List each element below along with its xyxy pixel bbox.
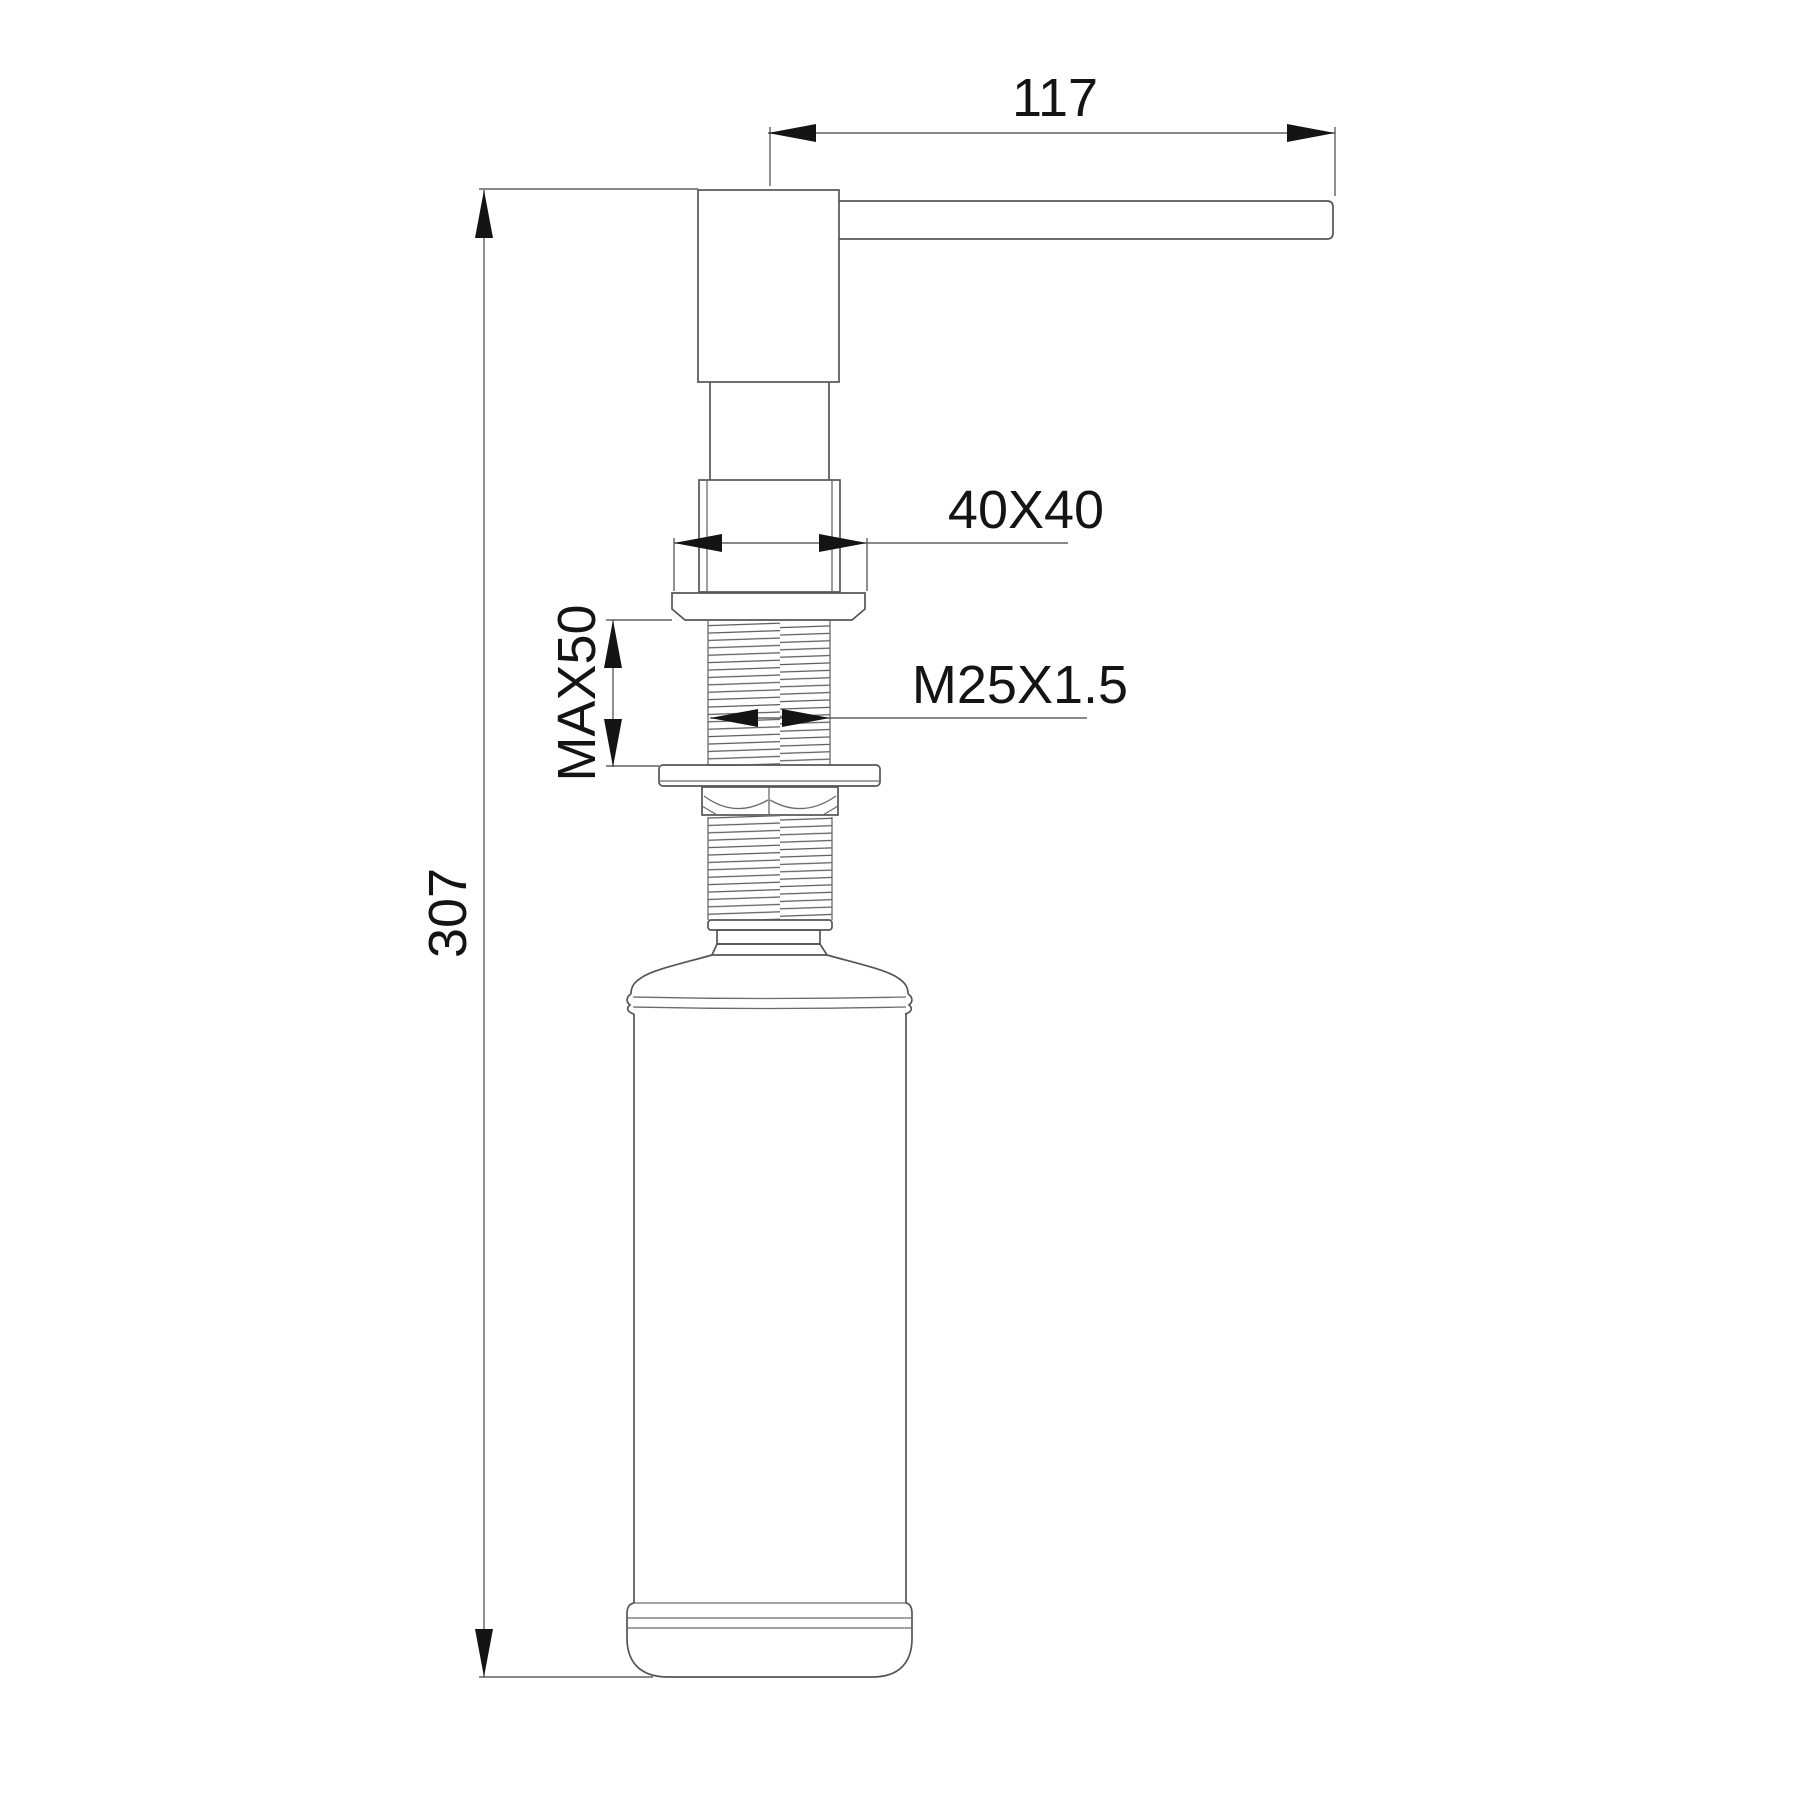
arrowhead-down-icon [475, 1629, 493, 1677]
bottle-base-cap [627, 1603, 912, 1677]
dim-label-spout-reach: 117 [1012, 68, 1098, 128]
upper-thread-section [708, 620, 830, 766]
dim-overall-height: 307 [418, 189, 698, 1677]
dim-spout-reach: 117 [768, 68, 1335, 196]
drawing-page: 117 40X40 MAX50 M25X1.5 [0, 0, 1800, 1800]
spout-tube [839, 201, 1333, 239]
bottle-body [634, 1014, 906, 1603]
technical-drawing-canvas: 117 40X40 MAX50 M25X1.5 [0, 0, 1800, 1800]
bottle-shoulder [631, 955, 908, 994]
arrowhead-up-icon [475, 190, 493, 238]
bottle-collar [708, 920, 832, 955]
dim-label-flange-size: 40X40 [948, 480, 1104, 540]
dim-flange-size: 40X40 [674, 480, 1104, 591]
arrowhead-right-icon [1287, 124, 1335, 142]
neck-tube [710, 382, 829, 480]
mounting-flange [672, 593, 865, 620]
washer [659, 765, 880, 786]
arrowhead-right-icon [819, 534, 867, 552]
arrowhead-left-icon [674, 534, 722, 552]
lower-thread-section [708, 816, 832, 920]
dim-label-thread-spec: M25X1.5 [912, 655, 1128, 715]
dim-max-mount-thickness: MAX50 [547, 604, 672, 781]
arrowhead-left-icon [768, 124, 816, 142]
hex-nut [702, 787, 838, 815]
dim-label-overall-height: 307 [418, 868, 478, 958]
pump-head [698, 190, 839, 382]
bottle-bead-ring [627, 994, 912, 1014]
dim-label-max-mount-thickness: MAX50 [547, 604, 607, 781]
